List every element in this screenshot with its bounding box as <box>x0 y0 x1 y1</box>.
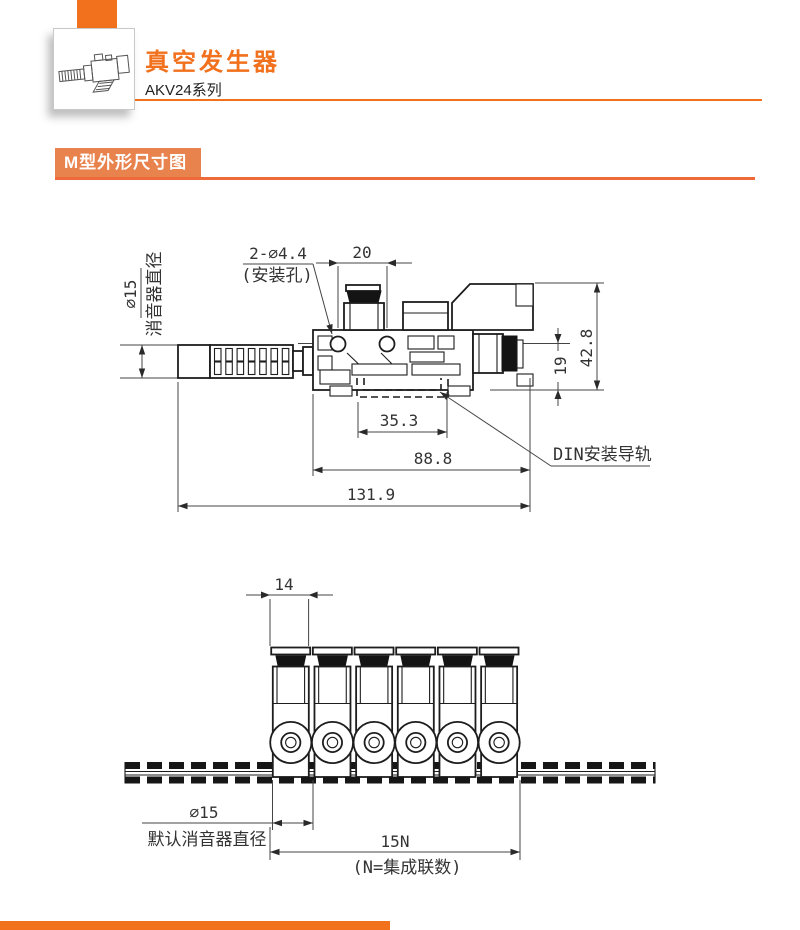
port-height-dim: 19 <box>551 356 570 375</box>
total-width-note: (N=集成联数) <box>353 858 462 878</box>
default-muffler-label: 默认消音器直径 <box>148 830 267 850</box>
clip-width-dim: 35.3 <box>380 411 419 430</box>
mount-holes-note: (安装孔) <box>241 266 312 286</box>
product-thumbnail <box>53 28 135 110</box>
muffler-dia-label: ∅15 <box>121 280 140 309</box>
page: { "colors": { "brand_orange": "#F1711D",… <box>0 0 800 930</box>
muffler-cn-label: 消音器直径 <box>145 252 165 337</box>
din-rail-label: DIN安装导轨 <box>553 445 652 465</box>
hole-pitch-dim: 20 <box>352 243 371 262</box>
drawing-top: ∅15 消音器直径 <box>120 243 652 512</box>
product-sketch-icon <box>54 29 132 107</box>
default-muffler-dia: ∅15 <box>190 803 219 822</box>
drawing-bottom: 14 ∅15 默认消音器直径 15N (N=集成联数) <box>125 575 655 878</box>
mount-holes-dim: 2-∅4.4 <box>249 244 307 263</box>
total-height-dim: 42.8 <box>577 329 596 368</box>
body-length-dim: 88.8 <box>414 449 453 468</box>
unit-width-dim: 14 <box>274 575 293 594</box>
total-length-dim: 131.9 <box>347 485 395 504</box>
total-width-dim: 15N <box>381 832 410 851</box>
dimension-drawings: ∅15 消音器直径 <box>0 0 800 930</box>
